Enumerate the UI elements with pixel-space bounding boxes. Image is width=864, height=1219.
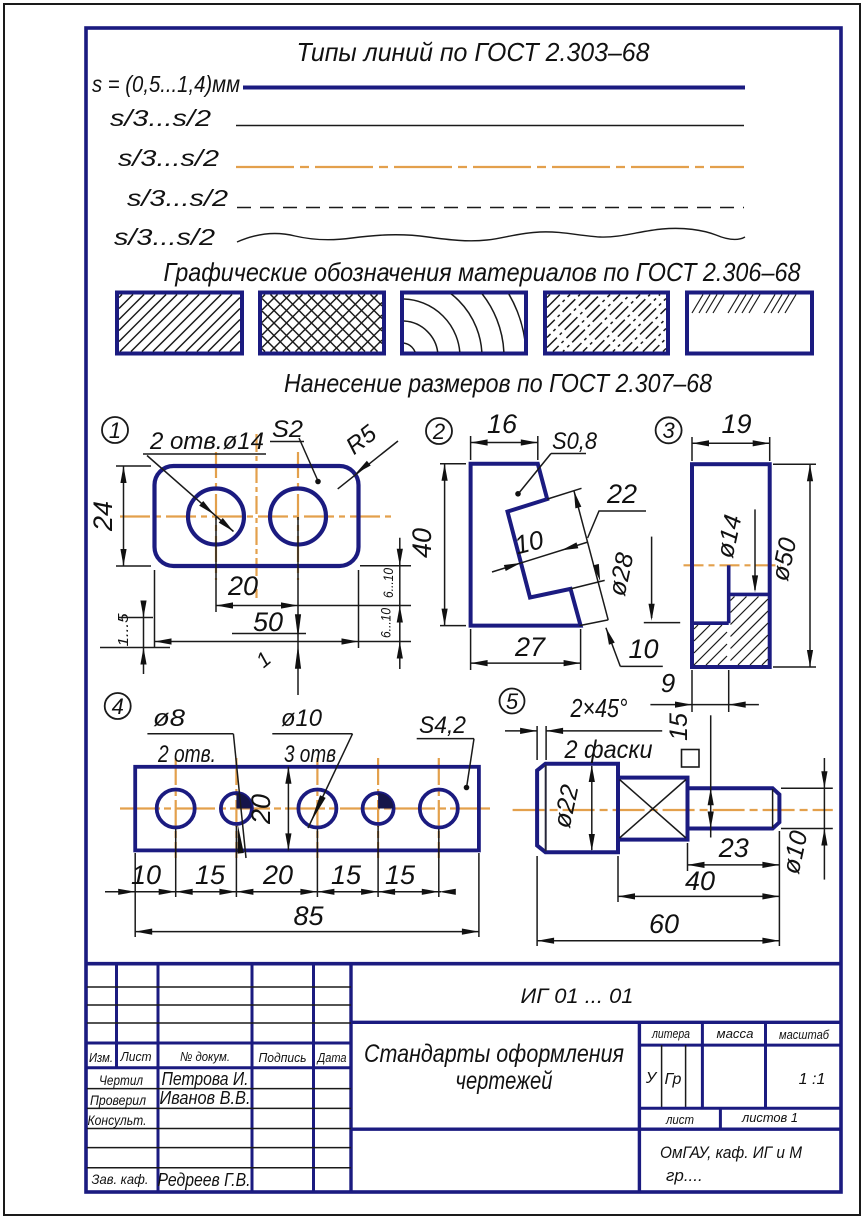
svg-text:ИГ 01 ... 01: ИГ 01 ... 01: [521, 985, 634, 1008]
svg-text:16: 16: [487, 409, 518, 439]
svg-text:3: 3: [662, 418, 675, 443]
svg-text:20: 20: [246, 794, 276, 825]
svg-text:15: 15: [331, 860, 362, 890]
svg-text:20: 20: [227, 571, 258, 601]
svg-text:Типы линий по ГОСТ 2.303–68: Типы линий по ГОСТ 2.303–68: [297, 37, 651, 67]
svg-text:ОмГАУ, каф. ИГ и М: ОмГАУ, каф. ИГ и М: [660, 1143, 803, 1162]
svg-text:s/3...s/2: s/3...s/2: [110, 105, 211, 131]
svg-text:1 :1: 1 :1: [799, 1071, 826, 1088]
svg-text:масштаб: масштаб: [779, 1027, 830, 1042]
svg-text:Зав. каф.: Зав. каф.: [92, 1171, 149, 1187]
svg-text:1...5: 1...5: [115, 613, 132, 647]
svg-text:6...10: 6...10: [380, 568, 396, 598]
svg-text:Нанесение размеров по ГОСТ 2.3: Нанесение размеров по ГОСТ 2.307–68: [284, 368, 712, 398]
svg-text:№ докум.: № докум.: [180, 1049, 230, 1064]
svg-text:s/3...s/2: s/3...s/2: [118, 145, 219, 171]
svg-text:Консульт.: Консульт.: [88, 1112, 147, 1128]
svg-text:Лист: Лист: [120, 1049, 152, 1064]
svg-text:Графические обозначения матери: Графические обозначения материалов по ГО…: [164, 257, 801, 287]
svg-text:Редреев Г.В.: Редреев Г.В.: [158, 1170, 251, 1190]
svg-text:s/3...s/2: s/3...s/2: [127, 185, 228, 211]
svg-text:листов 1: листов 1: [741, 1110, 798, 1125]
svg-text:22: 22: [606, 479, 637, 509]
svg-text:27: 27: [514, 632, 546, 662]
svg-text:2: 2: [432, 419, 445, 444]
svg-text:1: 1: [109, 418, 121, 443]
svg-text:У: У: [645, 1070, 658, 1087]
svg-text:23: 23: [718, 833, 749, 863]
svg-text:60: 60: [649, 909, 679, 939]
svg-text:5: 5: [506, 689, 519, 714]
svg-text:ø10: ø10: [281, 705, 323, 732]
svg-text:масса: масса: [717, 1026, 754, 1041]
svg-text:ø8: ø8: [153, 705, 186, 732]
svg-text:40: 40: [685, 866, 715, 896]
svg-text:9: 9: [661, 668, 675, 698]
svg-text:10: 10: [628, 634, 658, 664]
svg-text:20: 20: [262, 860, 293, 890]
svg-text:S2: S2: [272, 416, 303, 443]
svg-text:2 фаски: 2 фаски: [564, 736, 653, 764]
svg-text:Гр: Гр: [665, 1071, 682, 1088]
svg-text:Изм.: Изм.: [89, 1050, 113, 1065]
svg-text:2×45°: 2×45°: [570, 693, 628, 723]
svg-text:s = (0,5...1,4)мм: s = (0,5...1,4)мм: [92, 71, 240, 97]
svg-text:19: 19: [721, 409, 751, 439]
svg-text:литера: литера: [651, 1026, 690, 1041]
svg-text:чертежей: чертежей: [456, 1067, 553, 1095]
svg-text:Дата: Дата: [316, 1050, 347, 1065]
svg-text:40: 40: [407, 528, 437, 558]
svg-text:6...10: 6...10: [378, 608, 394, 638]
svg-text:S0,8: S0,8: [552, 428, 598, 455]
svg-text:15: 15: [665, 713, 693, 741]
svg-text:24: 24: [88, 501, 118, 532]
svg-text:4: 4: [112, 694, 124, 719]
svg-text:s/3...s/2: s/3...s/2: [114, 224, 215, 250]
svg-text:Стандарты оформления: Стандарты оформления: [364, 1040, 624, 1068]
svg-text:Чертил: Чертил: [99, 1072, 143, 1088]
svg-text:10: 10: [131, 860, 161, 890]
svg-text:Проверил: Проверил: [90, 1092, 146, 1108]
svg-text:гр....: гр....: [666, 1166, 703, 1185]
svg-text:S4,2: S4,2: [419, 712, 466, 739]
svg-text:Петрова И.: Петрова И.: [162, 1069, 249, 1089]
svg-text:Иванов В.В.: Иванов В.В.: [160, 1088, 251, 1108]
svg-text:15: 15: [385, 860, 416, 890]
svg-text:Подпись: Подпись: [259, 1050, 307, 1065]
svg-text:15: 15: [195, 860, 226, 890]
svg-text:50: 50: [253, 607, 283, 637]
svg-text:2 отв.ø14: 2 отв.ø14: [149, 428, 264, 455]
svg-text:2 отв.: 2 отв.: [157, 741, 216, 768]
svg-text:85: 85: [293, 901, 324, 931]
svg-text:лист: лист: [665, 1112, 694, 1127]
svg-text:3 отв: 3 отв: [284, 741, 336, 768]
